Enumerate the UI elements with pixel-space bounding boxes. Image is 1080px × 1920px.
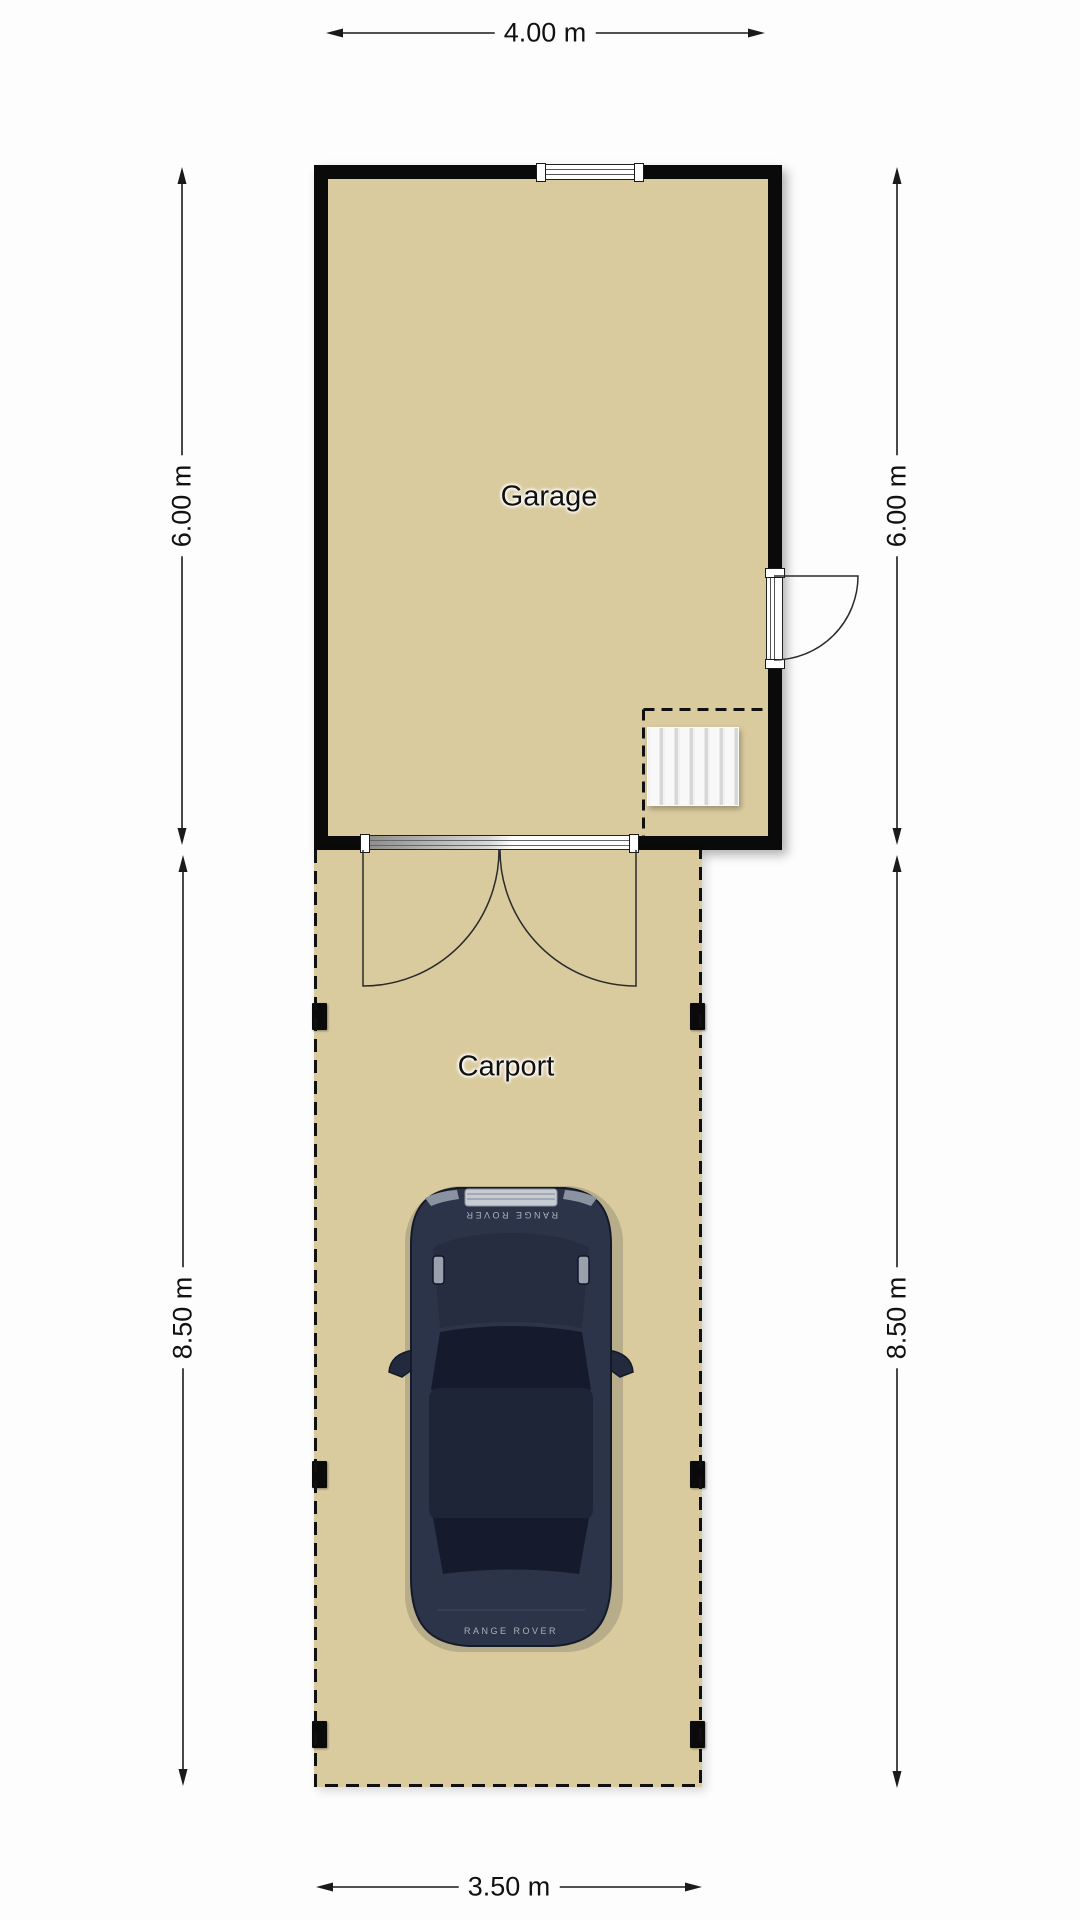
garage-label: Garage bbox=[501, 481, 598, 514]
garage-door-opening bbox=[361, 835, 638, 850]
carport-post bbox=[312, 1003, 327, 1030]
carport-post bbox=[690, 1003, 705, 1030]
carport-post bbox=[312, 1461, 327, 1488]
door-cap bbox=[765, 568, 785, 578]
carport-post bbox=[690, 1461, 705, 1488]
carport-post bbox=[690, 1721, 705, 1748]
garage-window bbox=[537, 164, 643, 180]
window-cap bbox=[634, 163, 644, 182]
door-cap bbox=[765, 659, 785, 669]
dim-carport-width-label: 3.50 m bbox=[459, 1870, 560, 1905]
dim-garage-height-left-label: 6.00 m bbox=[165, 456, 200, 557]
dim-carport-height-left-label: 8.50 m bbox=[166, 1268, 201, 1369]
floorplan-canvas: RANGE ROVER RANGE ROVER Garage Carport 4… bbox=[0, 0, 1080, 1920]
side-door-opening bbox=[766, 569, 783, 668]
dim-carport-height-right-label: 8.50 m bbox=[880, 1268, 915, 1369]
window-cap bbox=[536, 163, 546, 182]
door-cap bbox=[629, 834, 639, 853]
carport-label: Carport bbox=[458, 1051, 555, 1084]
door-cap bbox=[360, 834, 370, 853]
carport-area bbox=[314, 850, 702, 1787]
carport-post bbox=[312, 1721, 327, 1748]
dim-garage-width-label: 4.00 m bbox=[495, 16, 596, 51]
dim-garage-height-right-label: 6.00 m bbox=[880, 456, 915, 557]
stairs bbox=[647, 727, 739, 806]
side-door-swing bbox=[774, 576, 858, 660]
